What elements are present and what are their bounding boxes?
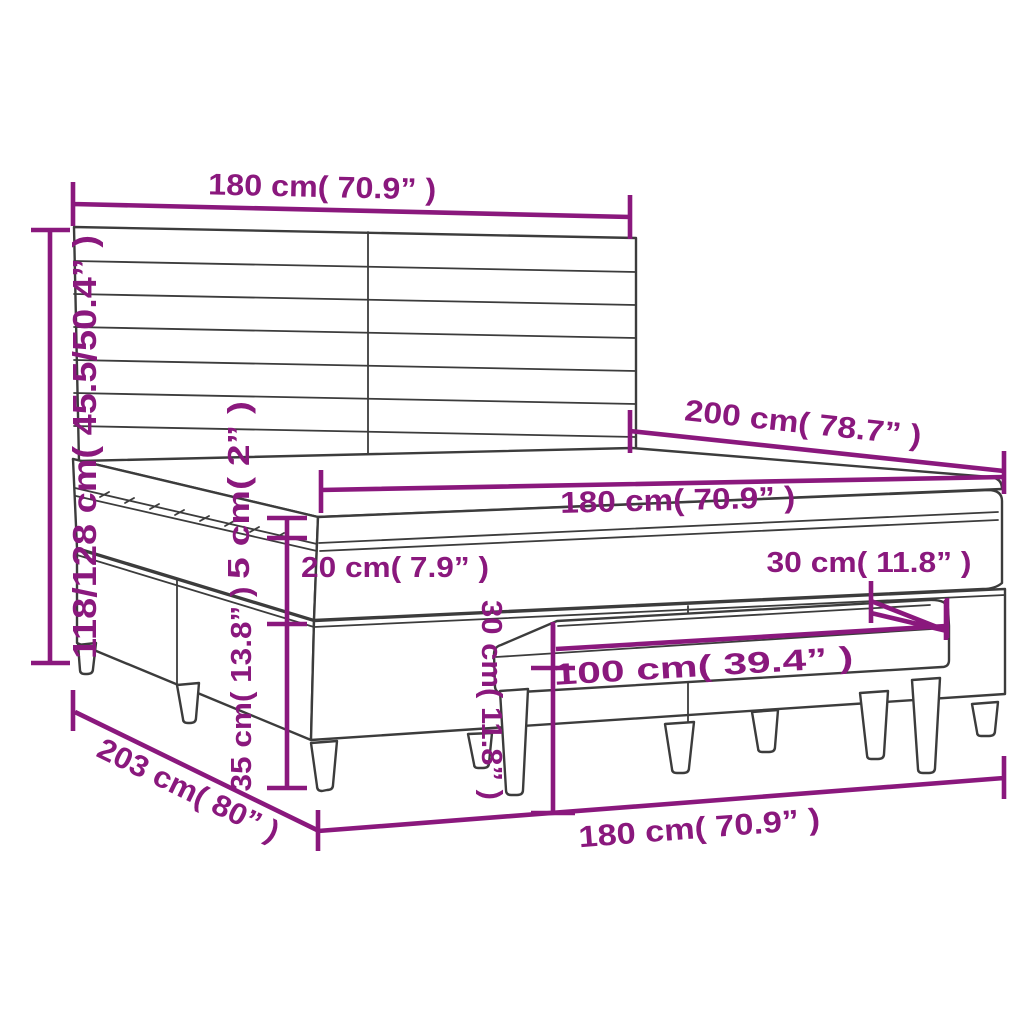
dim-frame-width: 180 cm( 70.9” ) bbox=[318, 756, 1004, 854]
dim-label-overall-height: 118/128 cm( 45.5/50.4” ) bbox=[66, 235, 103, 659]
bed-dimension-diagram: 180 cm( 70.9” ) 118/128 cm( 45.5/50.4” )… bbox=[0, 0, 1024, 1024]
dim-label-base-height: 35 cm( 13.8” ) bbox=[226, 587, 258, 792]
dim-label-bench-depth: 30 cm( 11.8” ) bbox=[767, 547, 972, 579]
headboard bbox=[74, 227, 636, 462]
dimension-line bbox=[31, 230, 70, 663]
dim-label-mattress-thickness: 20 cm( 7.9” ) bbox=[301, 552, 489, 584]
bed-leg bbox=[177, 683, 199, 723]
bed-leg bbox=[972, 702, 998, 736]
dim-label-bench-height: 30 cm( 11.8” ) bbox=[475, 600, 507, 800]
dim-label-headboard-width: 180 cm( 70.9” ) bbox=[208, 168, 437, 206]
bench-leg bbox=[860, 691, 888, 759]
dim-label-mattress-width: 180 cm( 70.9” ) bbox=[560, 481, 796, 520]
bed-leg bbox=[752, 710, 778, 752]
bench-leg bbox=[912, 678, 940, 773]
bench-leg bbox=[665, 722, 694, 773]
bed-leg bbox=[311, 741, 337, 791]
dim-overall-height: 118/128 cm( 45.5/50.4” ) bbox=[31, 230, 103, 663]
dim-label-frame-width: 180 cm( 70.9” ) bbox=[577, 803, 821, 854]
dim-label-topper-thickness: 5 cm( 2” ) bbox=[221, 401, 256, 579]
diagram-canvas: 180 cm( 70.9” ) 118/128 cm( 45.5/50.4” )… bbox=[0, 0, 1024, 1024]
dim-label-bed-length: 200 cm( 78.7” ) bbox=[683, 394, 923, 453]
